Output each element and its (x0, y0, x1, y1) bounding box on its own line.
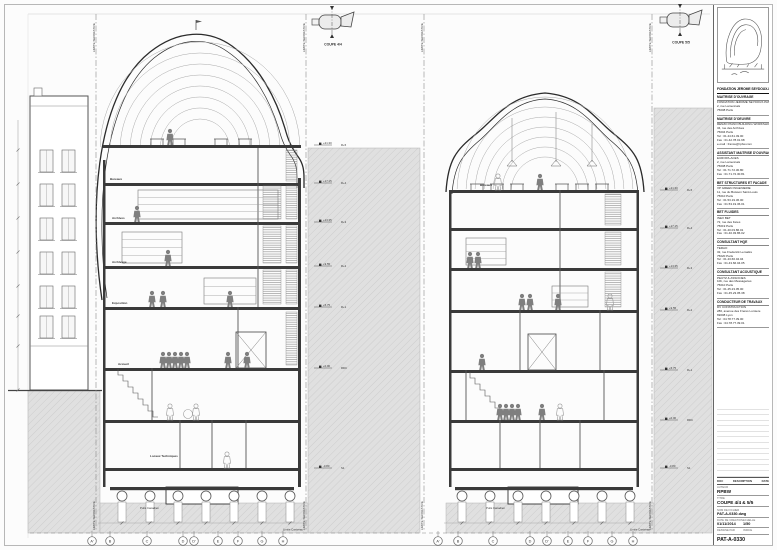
svg-text:D': D' (192, 539, 196, 543)
key-plan-icons: COUPE 4/4COUPE 5/5 (312, 4, 702, 47)
author-field: AUTEUR RPBW (717, 485, 769, 496)
svg-text:LIMITE SEPARATIVE: LIMITE SEPARATIVE (302, 501, 306, 530)
svg-text:-3.80: -3.80 (323, 464, 330, 468)
svg-text:RDC: RDC (341, 366, 347, 370)
svg-text:B: B (109, 539, 112, 543)
date-scale-field: DATE DE CREATION 01/11/2014 ECHELLE 1/50 (717, 518, 769, 528)
consultant-block: MAITRISE D'OUVRAGEFONDATION JEROME SEYDO… (717, 94, 769, 116)
svg-text:+21.30: +21.30 (323, 141, 332, 145)
svg-text:+13.35: +13.35 (323, 218, 332, 222)
scale-value: 1/50 (743, 522, 769, 526)
svg-text:LIMITE SEPARATIVE: LIMITE SEPARATIVE (92, 23, 96, 52)
svg-text:R+1: R+1 (341, 305, 347, 309)
svg-text:LIMITE SEPARATIVE: LIMITE SEPARATIVE (420, 23, 424, 52)
revision-space (717, 328, 769, 404)
author-value: RPBW (717, 489, 769, 494)
consultant-list: MAITRISE D'OUVRAGEFONDATION JEROME SEYDO… (717, 94, 769, 329)
svg-text:Exposition: Exposition (112, 301, 128, 305)
svg-text:R+3: R+3 (687, 266, 693, 270)
svg-text:R+2: R+2 (341, 264, 347, 268)
svg-text:B: B (457, 539, 460, 543)
svg-text:R+4: R+4 (341, 181, 347, 185)
consultant-line: Fax : 01.43.66.04.05 (717, 262, 769, 266)
index-label: INDICE (743, 529, 769, 532)
svg-text:R+3: R+3 (341, 220, 347, 224)
svg-text:G: G (611, 539, 614, 543)
svg-text:+13.35: +13.35 (669, 264, 678, 268)
consultant-block: CONSULTANT ACOUSTIQUEPEUTZ & ASSOCIES10b… (717, 269, 769, 299)
title-field: TITRE COUPE 4/4 & 5/5 (717, 496, 769, 507)
revision-header: DOC DESCRIPTION DATE (717, 477, 769, 485)
rev-col-doc: DOC (717, 479, 723, 483)
consultant-header: BET STRUCTURES ET FACADE (717, 181, 769, 187)
svg-text:Accueil: Accueil (118, 362, 129, 366)
consultant-block: CONDUCTEUR DE TRAVAUXDV CONSTRUCTION280,… (717, 299, 769, 329)
svg-text:RDC: RDC (687, 418, 693, 422)
svg-text:R+1: R+1 (687, 368, 693, 372)
svg-text:Limite Caniveau: Limite Caniveau (283, 528, 303, 532)
svg-text:E: E (567, 539, 570, 543)
consultant-header: ASSISTANT MAITRISE D'OUVRAGE (717, 151, 769, 157)
svg-text:Locaux Techniques: Locaux Techniques (150, 454, 178, 458)
consultant-block: CONSULTANT HQETERAO32, rue Frederick Lem… (717, 239, 769, 269)
svg-text:Puits Canadien: Puits Canadien (486, 506, 505, 510)
consultant-line: Fax : 04.78.77.39.01 (717, 322, 769, 326)
consultant-line: Fax : 01.71.72.30.81 (717, 173, 769, 177)
consultant-header: MAITRISE D'OUVRAGE (717, 95, 769, 101)
svg-text:LIMITE SEPARATIVE: LIMITE SEPARATIVE (92, 501, 96, 530)
svg-text:G: G (261, 539, 264, 543)
consultant-header: BET FLUIDES (717, 210, 769, 216)
svg-text:D: D (529, 539, 532, 543)
svg-text:LIMITE SEPARATIVE: LIMITE SEPARATIVE (420, 501, 424, 530)
svg-text:LIMITE SEPARATIVE: LIMITE SEPARATIVE (302, 23, 306, 52)
svg-text:Limite Caniveau: Limite Caniveau (630, 528, 650, 532)
svg-text:+0.00: +0.00 (323, 364, 331, 368)
consultant-header: CONDUCTEUR DE TRAVAUX (717, 300, 769, 306)
consultant-line: Fax : 01.45.23.05.38 (717, 292, 769, 296)
svg-text:D: D (182, 539, 185, 543)
sections-drawing: COUPE 4/4COUPE 5/5 A'BCDD'EFGH+21.30R+5+… (0, 0, 713, 550)
drawn-label: DESSINE PAR (717, 529, 743, 532)
svg-text:Archives: Archives (112, 216, 125, 220)
drawing-number: PAT-A-0330 (717, 535, 769, 544)
svg-text:Bureaux: Bureaux (110, 177, 122, 181)
svg-text:C: C (492, 539, 495, 543)
consultant-line: e-mail : france@rpbw.com (717, 143, 769, 147)
svg-text:R+5: R+5 (687, 188, 693, 192)
svg-text:Archivage: Archivage (112, 260, 127, 264)
rev-col-desc: DESCRIPTION (733, 479, 752, 483)
drawing-sheet: COUPE 4/4COUPE 5/5 A'BCDD'EFGH+21.30R+5+… (0, 0, 777, 550)
svg-text:R+5: R+5 (341, 143, 347, 147)
file-field: NOM DE FICHIER PAT-A-0330.dwg (717, 507, 769, 517)
drawing-title-value: COUPE 4/4 & 5/5 (717, 500, 769, 505)
consultant-block: ASSISTANT MAITRISE D'OUVRAGEEUROPA-ACES2… (717, 149, 769, 179)
svg-text:+5.75: +5.75 (323, 303, 331, 307)
svg-text:Puits Canadien: Puits Canadien (140, 506, 159, 510)
consultant-line: 75008 Paris (717, 109, 769, 113)
svg-text:Bureaux: Bureaux (480, 183, 492, 187)
title-sketch (717, 7, 769, 83)
project-title: FONDATION JEROME SEYDOUX-PATHE (717, 85, 769, 94)
svg-text:+21.30: +21.30 (669, 186, 678, 190)
svg-text:+5.75: +5.75 (669, 366, 677, 370)
svg-text:R+4: R+4 (687, 226, 693, 230)
svg-text:+9.55: +9.55 (669, 306, 677, 310)
svg-text:A': A' (436, 539, 440, 543)
svg-text:A': A' (90, 539, 94, 543)
svg-text:+17.15: +17.15 (323, 179, 332, 183)
svg-text:LIMITE SEPARATIVE: LIMITE SEPARATIVE (648, 23, 652, 52)
consultant-block: BET FLUIDESINEX BET72, rue des Fetes7501… (717, 209, 769, 239)
svg-text:+17.15: +17.15 (669, 224, 678, 228)
date-value: 01/11/2014 (717, 522, 743, 526)
consultant-block: BET STRUCTURES ET FACADEVP GREEN INGENIE… (717, 179, 769, 209)
svg-text:H: H (632, 539, 635, 543)
svg-text:-3.80: -3.80 (669, 464, 676, 468)
consultant-block: MAITRISE D'OEUVRERENZO PIANO BUILDING WO… (717, 116, 769, 150)
svg-text:+0.00: +0.00 (669, 416, 677, 420)
svg-text:COUPE 4/4: COUPE 4/4 (324, 43, 342, 47)
title-block: FONDATION JEROME SEYDOUX-PATHE MAITRISE … (713, 5, 772, 545)
rev-col-date: DATE (762, 479, 769, 483)
svg-text:LIMITE SEPARATIVE: LIMITE SEPARATIVE (648, 501, 652, 530)
consultant-header: MAITRISE D'OEUVRE (717, 117, 769, 123)
svg-text:S1: S1 (687, 466, 691, 470)
revision-table (717, 404, 769, 477)
svg-text:S1: S1 (341, 466, 345, 470)
svg-text:D': D' (545, 539, 549, 543)
svg-text:R+2: R+2 (687, 308, 693, 312)
svg-text:E: E (217, 539, 220, 543)
consultant-line: Fax : 01.53.19.36.01 (717, 203, 769, 207)
svg-text:H: H (282, 539, 285, 543)
svg-text:COUPE 5/5: COUPE 5/5 (672, 41, 690, 45)
consultant-header: CONSULTANT HQE (717, 240, 769, 246)
neighbor-elevation (8, 88, 102, 392)
consultant-line: Fax : 01.40.03.86.02 (717, 232, 769, 236)
file-value: PAT-A-0330.dwg (717, 512, 769, 516)
svg-text:C: C (146, 539, 149, 543)
svg-text:+9.55: +9.55 (323, 262, 331, 266)
consultant-header: CONSULTANT ACOUSTIQUE (717, 270, 769, 276)
